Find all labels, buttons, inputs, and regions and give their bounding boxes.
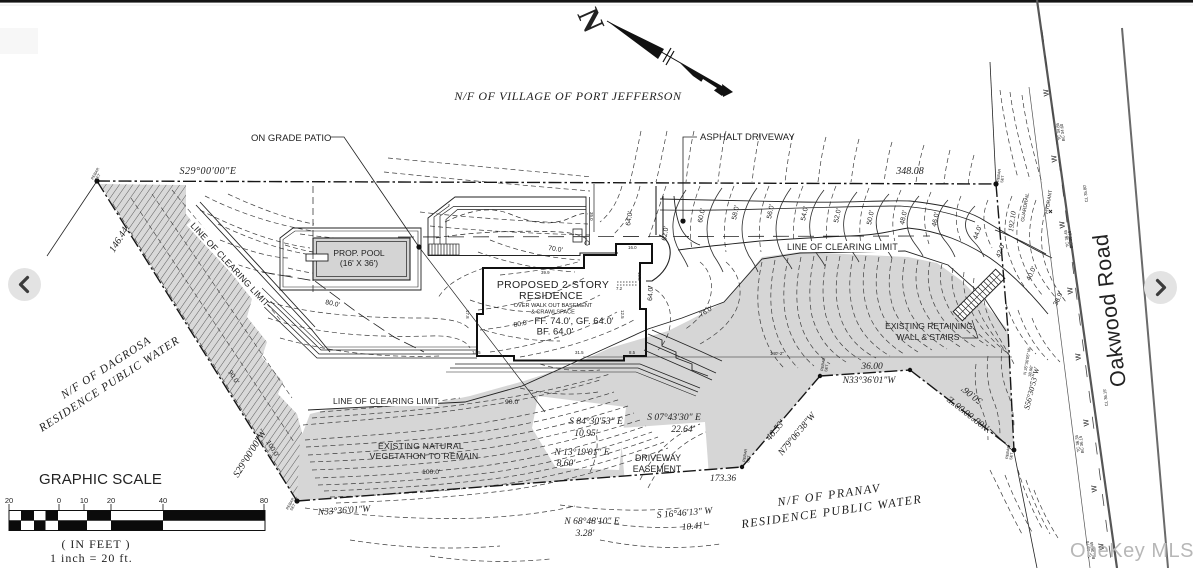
svg-text:36.00: 36.00: [860, 362, 883, 372]
svg-text:14.5: 14.5: [472, 350, 481, 355]
svg-text:EXISTING RETAINING: EXISTING RETAINING: [885, 321, 973, 331]
svg-text:348.08: 348.08: [895, 166, 924, 177]
svg-text:WALL & STAIRS: WALL & STAIRS: [897, 332, 960, 342]
svg-text:(16' X 36'): (16' X 36'): [340, 258, 378, 268]
svg-text:GRAPHIC SCALE: GRAPHIC SCALE: [39, 471, 162, 488]
svg-text:20: 20: [5, 496, 13, 505]
svg-text:0: 0: [57, 496, 61, 505]
svg-text:90.0': 90.0': [505, 399, 520, 406]
svg-text:RESIDENCE: RESIDENCE: [519, 290, 583, 302]
svg-text:S 07°43'30" E: S 07°43'30" E: [647, 412, 701, 423]
svg-text:10.3: 10.3: [637, 272, 642, 281]
svg-text:100.0': 100.0': [422, 469, 440, 476]
svg-text:12.5: 12.5: [620, 310, 625, 319]
svg-text:LINE OF CLEARING LIMIT: LINE OF CLEARING LIMIT: [787, 242, 898, 252]
svg-text:N 13°19'01" E: N 13°19'01" E: [553, 447, 609, 458]
svg-text:& CRAWLSPACE: & CRAWLSPACE: [531, 310, 575, 316]
svg-text:PROP. POOL: PROP. POOL: [333, 248, 385, 258]
svg-text:8.5: 8.5: [629, 350, 636, 355]
svg-text:7.2: 7.2: [616, 286, 623, 291]
svg-text:31.5: 31.5: [575, 350, 584, 355]
svg-text:3.28': 3.28': [575, 529, 596, 539]
svg-text:140'-2": 140'-2": [770, 351, 784, 356]
svg-text:8.60': 8.60': [557, 459, 577, 469]
svg-text:173.36: 173.36: [710, 474, 736, 484]
svg-text:40: 40: [159, 496, 167, 505]
svg-text:80: 80: [260, 496, 268, 505]
svg-text:ON GRADE PATIO: ON GRADE PATIO: [251, 133, 331, 144]
svg-text:( IN FEET ): ( IN FEET ): [61, 537, 130, 551]
svg-text:LINE OF CLEARING LIMIT: LINE OF CLEARING LIMIT: [333, 396, 439, 406]
svg-text:39.9: 39.9: [541, 270, 550, 275]
svg-text:10.95': 10.95': [574, 429, 598, 439]
svg-text:BF. 64.0': BF. 64.0': [537, 327, 574, 338]
svg-text:17.8: 17.8: [465, 310, 470, 319]
svg-text:EXISTING NATURAL: EXISTING NATURAL: [378, 441, 464, 451]
svg-text:N/F OF VILLAGE OF PORT JE: N/F OF VILLAGE OF PORT JEFFERSON: [453, 89, 682, 103]
svg-text:20: 20: [107, 496, 115, 505]
svg-text:N33°36'01"W: N33°36'01"W: [842, 375, 897, 386]
svg-text:S29°00'00"E: S29°00'00"E: [180, 166, 237, 177]
svg-text:1 inch = 20 ft.: 1 inch = 20 ft.: [50, 551, 133, 565]
svg-text:10: 10: [80, 496, 88, 505]
svg-text:16.0: 16.0: [628, 245, 637, 250]
svg-text:22.64': 22.64': [671, 425, 695, 435]
svg-text:DRIVEWAY: DRIVEWAY: [635, 453, 681, 463]
svg-text:EASEMENT: EASEMENT: [633, 464, 682, 474]
svg-text:ASPHALT DRIVEWAY: ASPHALT DRIVEWAY: [700, 132, 795, 143]
svg-text:S 84°30'53" E: S 84°30'53" E: [569, 416, 623, 427]
svg-text:N 68°48'10" E: N 68°48'10" E: [563, 516, 619, 527]
svg-text:VEGETATION TO REMAIN: VEGETATION TO REMAIN: [370, 451, 479, 461]
svg-text:OVER WALK OUT BASEMENT: OVER WALK OUT BASEMENT: [514, 303, 593, 309]
svg-text:FF. 74.0', GF. 64.0': FF. 74.0', GF. 64.0': [534, 316, 613, 327]
svg-text:10.41': 10.41': [681, 521, 706, 533]
svg-text:64.0': 64.0': [647, 286, 655, 301]
svg-text:35.0: 35.0: [589, 212, 594, 221]
